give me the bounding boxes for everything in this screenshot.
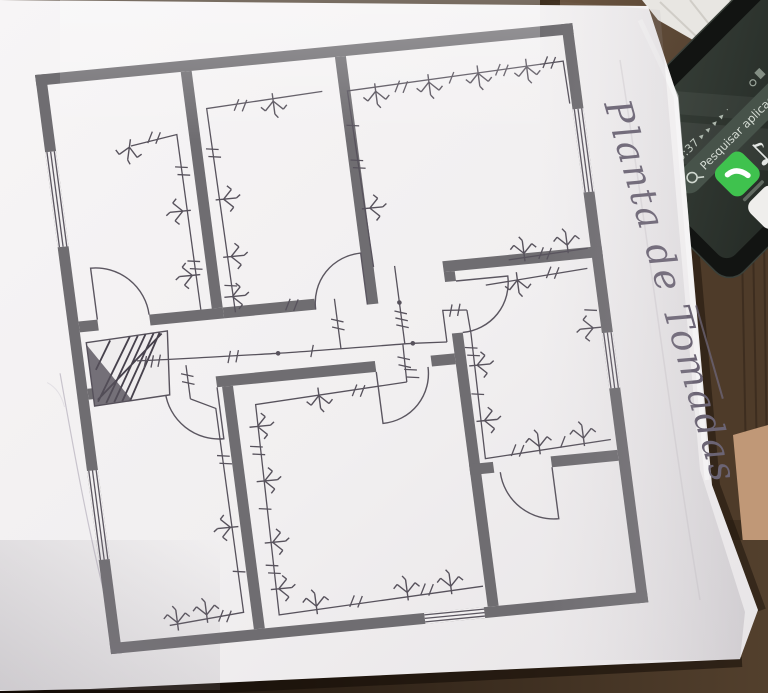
wall-divider-right-stub	[444, 271, 456, 282]
wall-room7-top-a	[469, 462, 494, 475]
wall-room1-bottom-a	[78, 320, 98, 333]
wall-hall-bottom-c	[431, 353, 456, 366]
scene: 15:37 ▸ ▸ ▸ ▸ · Pesquisar aplicações ♪	[0, 0, 768, 693]
photo-of-floor-plan: 15:37 ▸ ▸ ▸ ▸ · Pesquisar aplicações ♪	[0, 0, 768, 693]
electrical-panel	[86, 331, 176, 406]
